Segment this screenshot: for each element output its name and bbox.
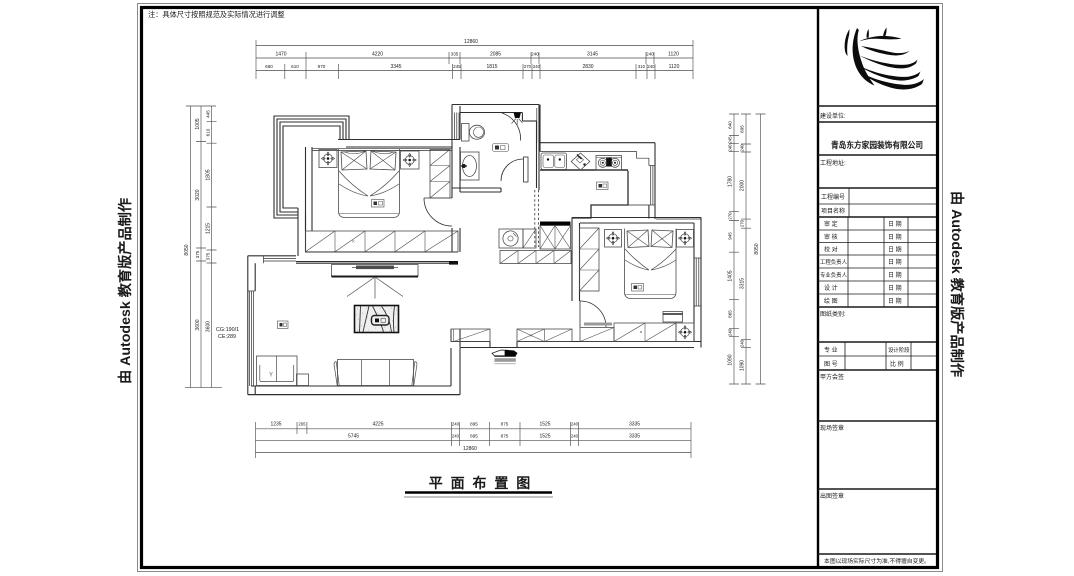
svg-text:3600: 3600	[195, 319, 201, 330]
svg-text:1525: 1525	[539, 434, 550, 440]
svg-text:445: 445	[206, 110, 211, 118]
svg-text:970: 970	[318, 64, 326, 69]
svg-text:2830: 2830	[582, 64, 593, 70]
svg-text:平 面 布 置 图: 平 面 布 置 图	[429, 475, 533, 491]
svg-text:1805: 1805	[206, 169, 212, 180]
svg-text:240: 240	[452, 434, 460, 439]
svg-text:CE:289: CE:289	[218, 334, 236, 340]
svg-text:专 业: 专 业	[824, 346, 838, 354]
svg-text:3020: 3020	[195, 189, 201, 200]
svg-text:CG:190/1: CG:190/1	[216, 327, 239, 333]
svg-text:由 Autodesk 教育版产品制作: 由 Autodesk 教育版产品制作	[117, 198, 134, 384]
svg-text:注：具体尺寸按照规范及实际情况进行调整: 注：具体尺寸按照规范及实际情况进行调整	[148, 10, 285, 19]
svg-text:1525: 1525	[539, 422, 550, 428]
svg-text:3335: 3335	[629, 422, 640, 428]
svg-text:2000: 2000	[740, 180, 746, 191]
svg-text:610: 610	[291, 64, 299, 69]
svg-text:5745: 5745	[348, 434, 359, 440]
svg-text:出图签章: 出图签章	[820, 492, 844, 500]
svg-text:8050: 8050	[184, 244, 190, 255]
svg-text:1090: 1090	[740, 360, 746, 371]
svg-text:875: 875	[501, 422, 509, 427]
svg-text:1120: 1120	[669, 64, 680, 70]
svg-text:610: 610	[206, 128, 211, 136]
svg-text:240: 240	[647, 64, 655, 69]
svg-text:建设单位:: 建设单位:	[820, 112, 846, 120]
svg-text:由 Autodesk 教育版产品制作: 由 Autodesk 教育版产品制作	[948, 191, 965, 377]
svg-text:240: 240	[571, 422, 579, 427]
svg-text:4225: 4225	[372, 422, 383, 428]
svg-text:865: 865	[728, 310, 733, 318]
svg-text:审 核: 审 核	[824, 233, 838, 241]
svg-text:日 期: 日 期	[888, 284, 902, 292]
svg-text:895: 895	[470, 422, 478, 427]
svg-text:1215: 1215	[206, 223, 212, 234]
svg-text:375: 375	[206, 252, 211, 260]
svg-text:12860: 12860	[463, 446, 477, 452]
svg-text:审 定: 审 定	[824, 220, 838, 228]
svg-text:3335: 3335	[629, 434, 640, 440]
svg-text:945: 945	[728, 232, 733, 240]
svg-text:校 对: 校 对	[824, 246, 838, 254]
svg-text:1780: 1780	[728, 176, 734, 187]
svg-text:8050: 8050	[754, 243, 760, 254]
svg-text:1005: 1005	[195, 118, 201, 129]
svg-text:240: 240	[571, 434, 579, 439]
svg-text:日 期: 日 期	[888, 271, 902, 279]
svg-text:245: 245	[453, 64, 461, 69]
svg-text:日 期: 日 期	[888, 233, 902, 241]
svg-text:240: 240	[452, 422, 460, 427]
svg-text:1815: 1815	[486, 64, 497, 70]
svg-text:日 期: 日 期	[888, 220, 902, 228]
svg-text:270: 270	[740, 219, 745, 227]
svg-text:本图以现场实际尺寸为准,不得擅自变更。: 本图以现场实际尺寸为准,不得擅自变更。	[824, 557, 930, 565]
svg-text:3315: 3315	[740, 278, 746, 289]
svg-text:1235: 1235	[270, 422, 281, 428]
svg-text:4220: 4220	[372, 52, 383, 58]
svg-text:专业负责人: 专业负责人	[820, 271, 848, 279]
svg-text:240: 240	[646, 52, 654, 57]
svg-text:工程编号: 工程编号	[821, 193, 845, 201]
svg-text:3145: 3145	[587, 52, 598, 58]
svg-text:设计阶段: 设计阶段	[888, 346, 910, 354]
svg-text:工程负责人: 工程负责人	[820, 258, 848, 266]
svg-text:240: 240	[533, 64, 541, 69]
svg-text:日 期: 日 期	[888, 246, 902, 254]
svg-text:图纸类别:: 图纸类别:	[820, 310, 846, 318]
svg-text:375: 375	[195, 250, 200, 258]
svg-text:12860: 12860	[464, 39, 478, 45]
svg-text:1090: 1090	[728, 354, 734, 365]
svg-text:265: 265	[298, 422, 306, 427]
svg-text:895: 895	[470, 434, 478, 439]
svg-text:3600: 3600	[206, 321, 212, 332]
svg-text:甲方会签: 甲方会签	[820, 373, 844, 381]
svg-text:现场签章: 现场签章	[820, 424, 844, 432]
svg-text:240: 240	[728, 328, 733, 336]
svg-text:895: 895	[740, 125, 745, 133]
svg-text:240: 240	[728, 144, 733, 152]
svg-text:1405: 1405	[728, 270, 734, 281]
svg-text:310: 310	[638, 64, 646, 69]
svg-text:日 期: 日 期	[888, 297, 902, 305]
svg-text:875: 875	[501, 434, 509, 439]
svg-text:660: 660	[265, 64, 273, 69]
svg-text:设 计: 设 计	[824, 284, 838, 292]
svg-text:比 例: 比 例	[890, 360, 904, 368]
svg-text:240: 240	[531, 52, 539, 57]
svg-text:1470: 1470	[275, 52, 286, 58]
svg-text:图 号: 图 号	[824, 361, 838, 368]
svg-text:270: 270	[728, 212, 733, 220]
svg-text:绘 图: 绘 图	[824, 297, 838, 305]
svg-text:工程地址:: 工程地址:	[820, 159, 846, 167]
svg-text:日 期: 日 期	[888, 258, 902, 266]
svg-text:项目名称: 项目名称	[821, 207, 845, 215]
svg-text:245: 245	[728, 136, 733, 144]
svg-text:270: 270	[524, 64, 532, 69]
svg-text:240: 240	[740, 339, 745, 347]
svg-text:240: 240	[740, 144, 745, 152]
svg-text:3345: 3345	[390, 64, 401, 70]
svg-text:1120: 1120	[668, 52, 679, 58]
svg-text:640: 640	[728, 121, 733, 129]
svg-text:335: 335	[451, 52, 459, 57]
svg-text:青岛东方家园装饰有限公司: 青岛东方家园装饰有限公司	[831, 139, 923, 150]
svg-text:2085: 2085	[490, 52, 501, 58]
